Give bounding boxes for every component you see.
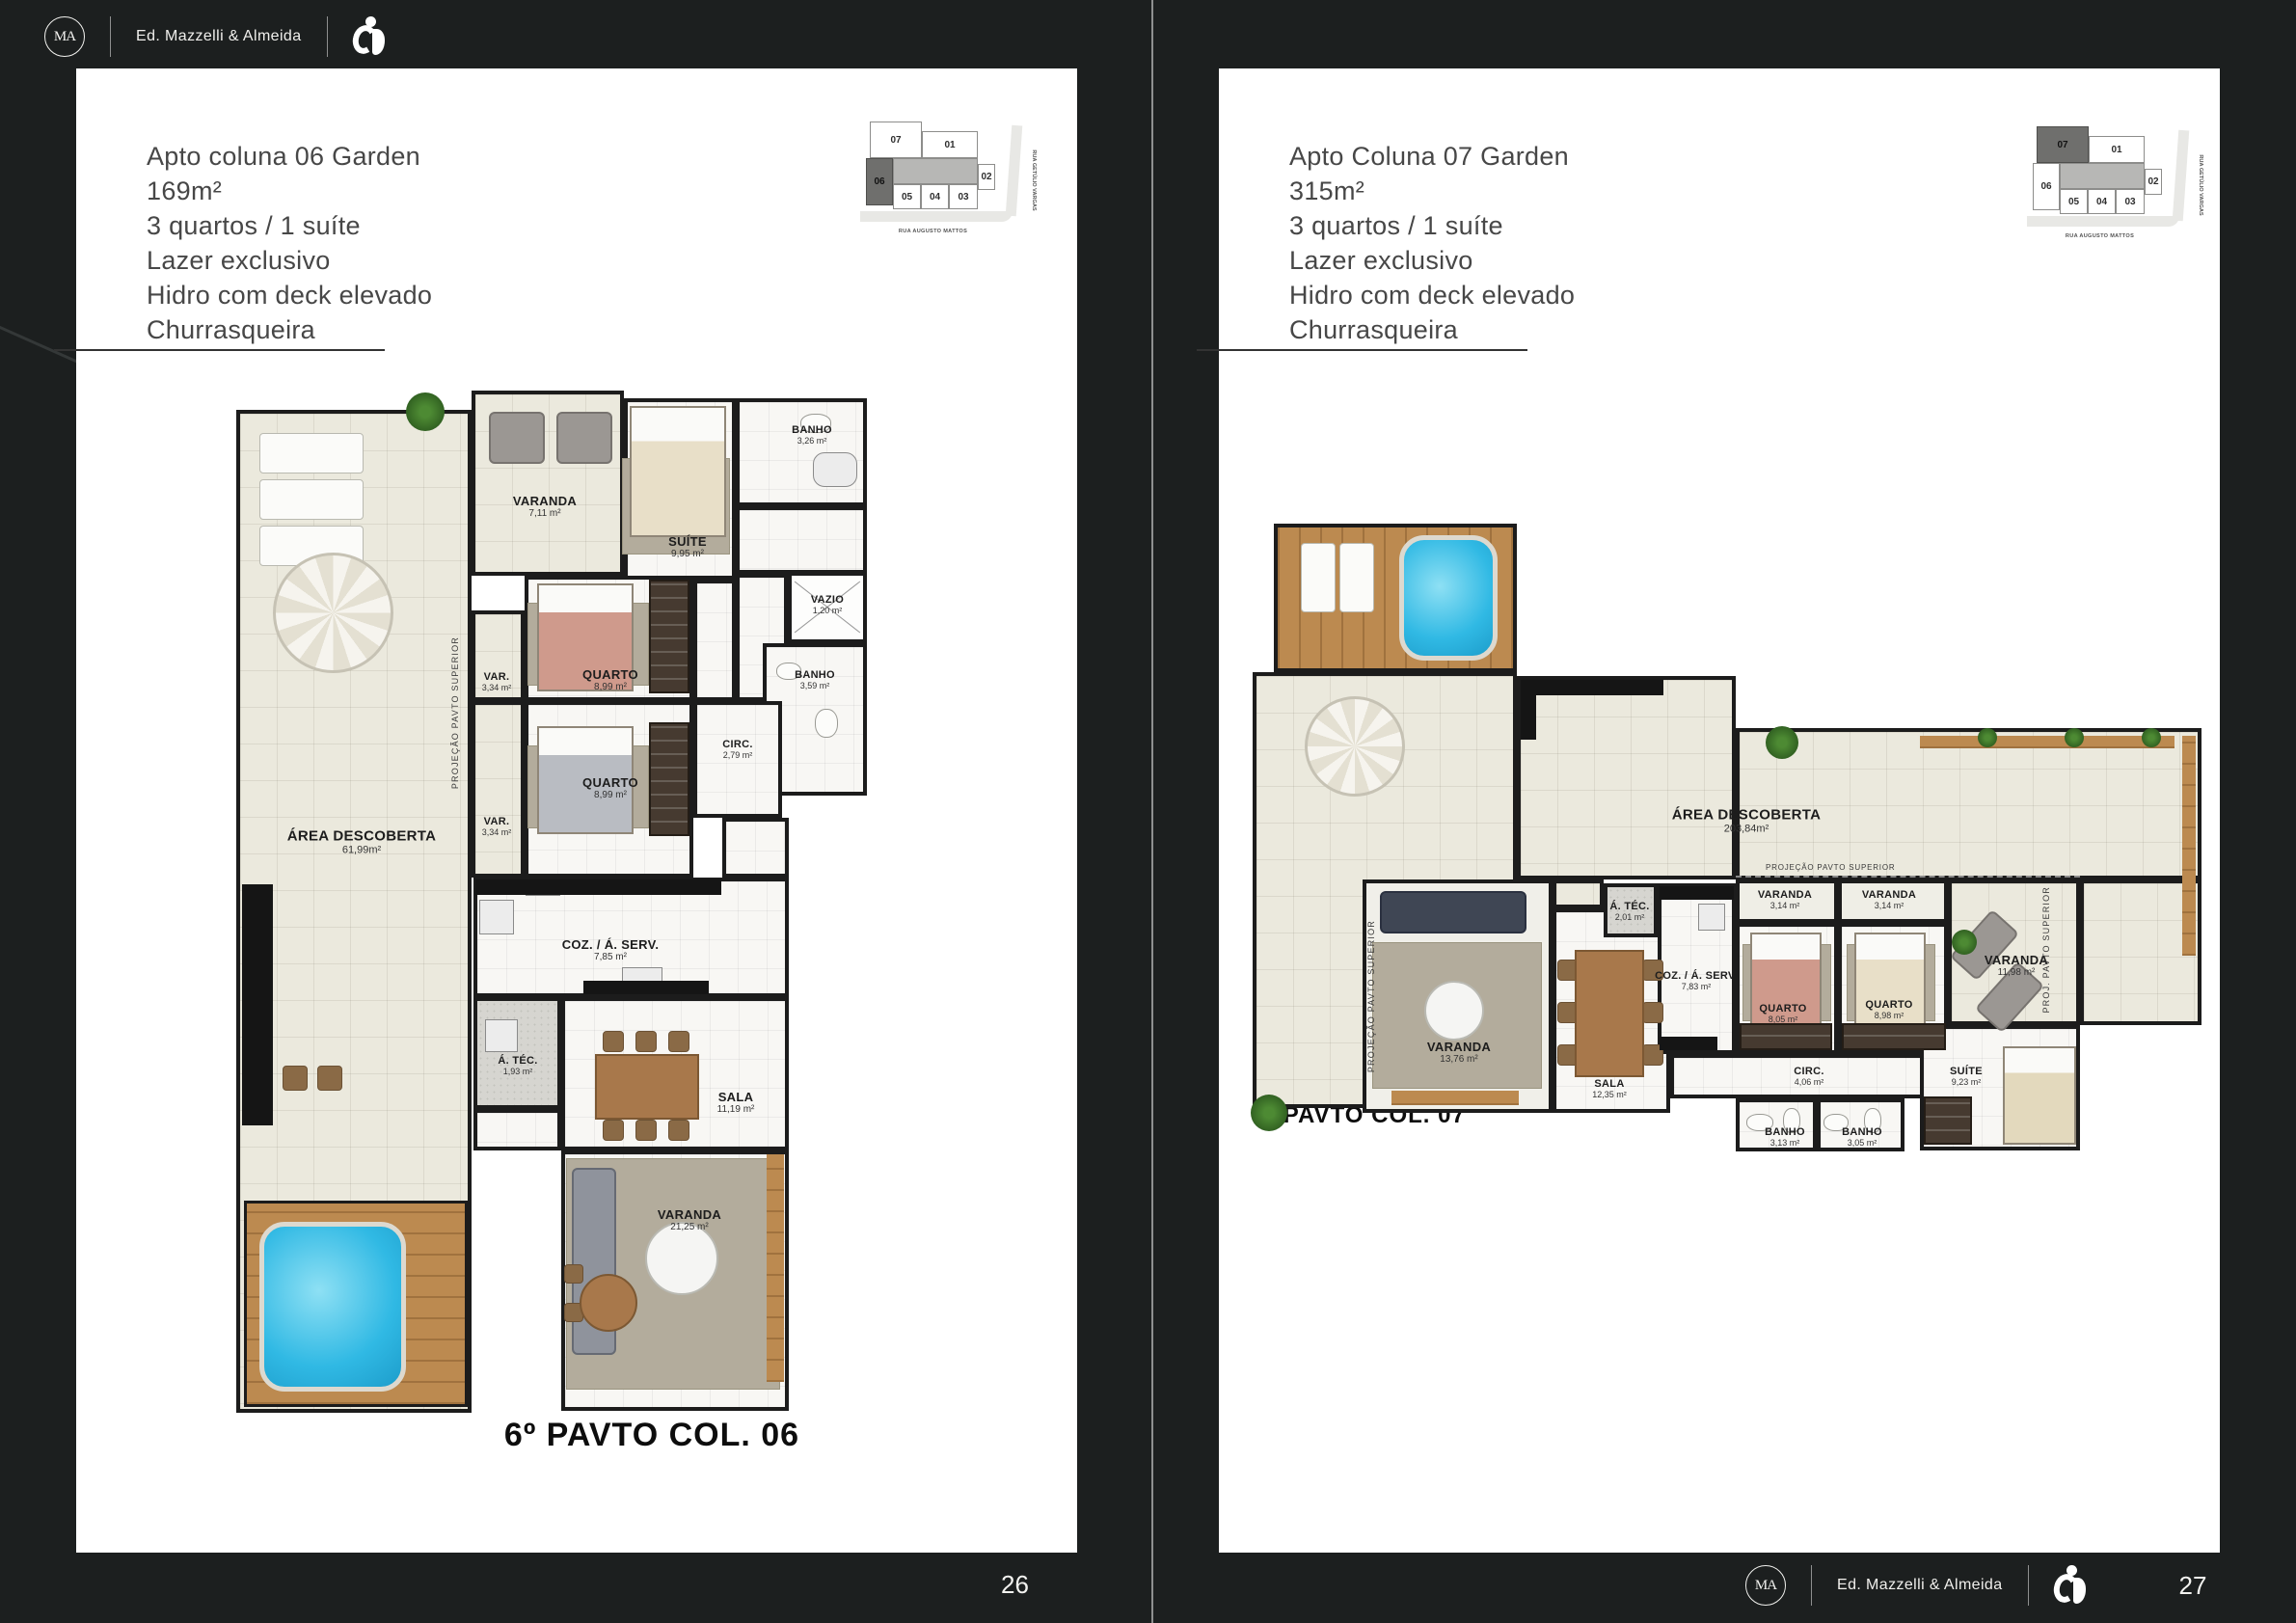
- wardrobe: [649, 722, 689, 836]
- kitchen-counter: [475, 879, 721, 895]
- hall: [1553, 879, 1604, 908]
- room-label-sala: SALA11,19 m²: [717, 1090, 755, 1115]
- plan-caption: 6º PAVTO COL. 06: [454, 1417, 850, 1454]
- room-label-area-descoberta: ÁREA DESCOBERTA61,99m²: [287, 828, 437, 856]
- room-label-sala: SALA12,35 m²: [1592, 1078, 1627, 1099]
- projection-label: PROJEÇÃO PAVTO SUPERIOR: [1366, 920, 1376, 1072]
- apt-feature: Hidro com deck elevado: [147, 279, 432, 313]
- street-label-bottom: RUA AUGUSTO MATTOS: [886, 228, 979, 233]
- keyplan-street-band: [2027, 216, 2179, 227]
- keyplan-unit-07: 07: [870, 122, 922, 158]
- room-label-banho-suite: BANHO3,26 m²: [792, 424, 832, 446]
- keyplan-unit-06-highlighted: 06: [866, 158, 893, 205]
- projection-dashed-line: [1736, 876, 2080, 878]
- chair: [1642, 1002, 1663, 1023]
- keyplan-core: [2060, 163, 2145, 189]
- bench: [1391, 1091, 1519, 1105]
- keyplan-unit-05: 05: [893, 184, 921, 209]
- room-label-varanda-1: VARANDA3,14 m²: [1758, 889, 1812, 910]
- wardrobe: [1740, 1023, 1832, 1050]
- room-var-2: [472, 701, 525, 878]
- header-bar: MA Ed. Mazzelli & Almeida: [44, 0, 386, 73]
- apt-feature: Churrasqueira: [1289, 313, 1575, 348]
- hall: [693, 580, 736, 701]
- lounger: [1339, 543, 1374, 612]
- keyplan-street-band: [2173, 130, 2190, 222]
- hall: [473, 1109, 561, 1150]
- plant: [1978, 728, 1997, 747]
- street-label-right: RUA GETÚLIO VARGAS: [1032, 149, 1038, 210]
- room-area-descoberta: [1736, 728, 2201, 879]
- apt-area: 315m²: [1289, 175, 1575, 209]
- room-area-descoberta: [1517, 676, 1736, 879]
- floorplan-col06: VARANDA7,11 m² SUÍTE9,95 m² BANHO3,26 m²…: [236, 391, 873, 1413]
- keyplan-unit-01: 01: [922, 131, 978, 158]
- appliance: [485, 1019, 518, 1052]
- apartment-description: Apto coluna 06 Garden 169m² 3 quartos / …: [147, 140, 432, 347]
- lounger: [259, 433, 364, 473]
- keyplan-unit-02: 02: [978, 164, 995, 190]
- room-label-varanda-main: VARANDA13,76 m²: [1427, 1040, 1491, 1065]
- kitchen-counter: [1521, 680, 1663, 695]
- apt-feature: Churrasqueira: [147, 313, 432, 348]
- room-label-banho-2: BANHO3,05 m²: [1842, 1126, 1882, 1148]
- apt-area: 169m²: [147, 175, 432, 209]
- street-label-right: RUA GETÚLIO VARGAS: [2199, 154, 2204, 215]
- kitchen-counter: [1521, 695, 1536, 740]
- page-number-right: 27: [2179, 1571, 2207, 1601]
- heading-divider: [54, 349, 385, 351]
- kitchen-counter: [1660, 1037, 1717, 1050]
- room-label-vazio: VAZIO1,20 m²: [811, 594, 844, 615]
- keyplan-unit-05: 05: [2060, 189, 2088, 214]
- room-label-banho-1: BANHO3,13 m²: [1765, 1126, 1805, 1148]
- room-label-coz: COZ. / Á. SERV.7,83 m²: [1655, 970, 1738, 991]
- parasol-table: [273, 553, 393, 673]
- bed-suite: [2003, 1046, 2076, 1145]
- coffee-table: [1424, 981, 1484, 1041]
- plant: [1766, 726, 1798, 759]
- projection-label: PROJEÇÃO PAVTO SUPERIOR: [450, 636, 460, 789]
- apt-feature: Hidro com deck elevado: [1289, 279, 1575, 313]
- wardrobe: [649, 580, 689, 693]
- stool: [283, 1066, 308, 1091]
- apt-feature: Lazer exclusivo: [147, 244, 432, 279]
- apt-title: Apto Coluna 07 Garden: [1289, 140, 1575, 175]
- room-label-banho-2: BANHO3,59 m²: [795, 669, 835, 690]
- room-label-varanda-bottom: VARANDA21,25 m²: [658, 1207, 721, 1232]
- room-a-tec: [473, 997, 561, 1109]
- parasol-table: [1305, 696, 1405, 797]
- projection-label-top: PROJEÇÃO PAVTO SUPERIOR: [1766, 863, 1895, 872]
- dining-table: [1575, 950, 1644, 1077]
- brand-name: Ed. Mazzelli & Almeida: [1837, 1577, 2003, 1594]
- room-label-circ: CIRC.2,79 m²: [722, 739, 752, 760]
- hall: [722, 818, 789, 878]
- lounger: [1301, 543, 1336, 612]
- room-label-circ: CIRC.4,06 m²: [1794, 1066, 1823, 1087]
- stool: [317, 1066, 342, 1091]
- keyplan: 07 01 02 06 05 04 03 RUA AUGUSTO MATTOS …: [858, 116, 1027, 231]
- fridge: [1698, 904, 1725, 931]
- apt-rooms: 3 quartos / 1 suíte: [147, 209, 432, 244]
- dining-table: [595, 1054, 699, 1120]
- footer-bar: MA Ed. Mazzelli & Almeida 27: [1745, 1560, 2206, 1610]
- keyplan-unit-04: 04: [921, 184, 949, 209]
- footer-divider: [2028, 1565, 2029, 1606]
- room-label-suite: SUÍTE9,95 m²: [668, 534, 707, 559]
- churrasqueira-counter: [242, 884, 273, 1125]
- page-left: Apto coluna 06 Garden 169m² 3 quartos / …: [76, 68, 1077, 1553]
- sofa: [1380, 891, 1526, 933]
- room-label-varanda-top: VARANDA7,11 m²: [513, 494, 577, 519]
- brochure-spread: MA Ed. Mazzelli & Almeida MA Ed. Mazzell…: [0, 0, 2296, 1623]
- keyplan-street-band: [860, 211, 1013, 222]
- room-label-quarto-2: QUARTO8,99 m²: [582, 775, 638, 800]
- plant: [1251, 1095, 1287, 1131]
- keyplan-unit-02: 02: [2145, 169, 2162, 195]
- heading-divider: [1197, 349, 1527, 351]
- armchair: [489, 412, 545, 464]
- keyplan-street-band: [1006, 125, 1023, 217]
- apt-feature: Lazer exclusivo: [1289, 244, 1575, 279]
- keyplan: 07 01 02 06 05 04 03 RUA AUGUSTO MATTOS …: [2025, 121, 2194, 236]
- builder-logo-icon: [2054, 1565, 2087, 1606]
- chair: [668, 1031, 689, 1052]
- keyplan-unit-03: 03: [949, 184, 978, 209]
- plant: [2142, 728, 2161, 747]
- kitchen-counter: [1660, 886, 1734, 900]
- kitchen-counter: [583, 981, 709, 994]
- bench: [767, 1154, 784, 1382]
- keyplan-unit-06: 06: [2033, 163, 2060, 210]
- chair: [668, 1120, 689, 1141]
- wardrobe: [1842, 1023, 1946, 1050]
- room-label-quarto-1: QUARTO8,99 m²: [582, 667, 638, 692]
- apt-rooms: 3 quartos / 1 suíte: [1289, 209, 1575, 244]
- floorplan-col07: ÁREA DESCOBERTA203,84m² VARANDA13,76 m² …: [1245, 520, 2215, 1157]
- lounger: [259, 479, 364, 520]
- plant: [1952, 930, 1977, 955]
- hidro-pool: [1399, 535, 1498, 661]
- hidro-pool: [259, 1222, 406, 1392]
- room-label-coz: COZ. / Á. SERV.7,85 m²: [562, 937, 660, 962]
- hall: [736, 506, 867, 574]
- chair: [635, 1031, 657, 1052]
- room-label-varanda-2: VARANDA3,14 m²: [1862, 889, 1916, 910]
- page-number-left: 26: [1001, 1570, 1029, 1600]
- room-label-quarto-1: QUARTO8,05 m²: [1759, 1003, 1806, 1024]
- apartment-description: Apto Coluna 07 Garden 315m² 3 quartos / …: [1289, 140, 1575, 347]
- keyplan-unit-07-highlighted: 07: [2037, 126, 2089, 163]
- bathtub: [813, 452, 857, 487]
- armchair: [556, 412, 612, 464]
- builder-logo-icon: [353, 16, 386, 57]
- spread-spine-line: [1151, 0, 1153, 1623]
- chair: [603, 1120, 624, 1141]
- plant: [406, 392, 445, 431]
- planter-bench: [1920, 736, 2174, 748]
- page-right: Apto Coluna 07 Garden 315m² 3 quartos / …: [1219, 68, 2220, 1553]
- toilet: [815, 709, 838, 738]
- chair: [564, 1264, 583, 1284]
- header-divider: [110, 16, 111, 57]
- keyplan-unit-04: 04: [2088, 189, 2116, 214]
- pergola-edge: [2182, 736, 2196, 956]
- keyplan-unit-01: 01: [2089, 136, 2145, 163]
- brand-name: Ed. Mazzelli & Almeida: [136, 28, 302, 45]
- keyplan-core: [893, 158, 978, 184]
- bed-suite: [630, 406, 726, 537]
- wardrobe: [1924, 1096, 1972, 1145]
- chair: [635, 1120, 657, 1141]
- chair: [603, 1031, 624, 1052]
- apt-title: Apto coluna 06 Garden: [147, 140, 432, 175]
- footer-divider: [1811, 1565, 1812, 1606]
- ma-logo-icon: MA: [1745, 1565, 1786, 1606]
- projection-label-short: PROJ. PAVTO SUPERIOR: [2041, 886, 2051, 1014]
- ma-logo-icon: MA: [44, 16, 85, 57]
- room-label-a-tec: Á. TÉC.1,93 m²: [498, 1055, 537, 1076]
- coffee-table: [645, 1222, 718, 1295]
- street-label-bottom: RUA AUGUSTO MATTOS: [2053, 232, 2146, 238]
- round-table: [580, 1274, 637, 1332]
- plant: [2065, 728, 2084, 747]
- header-divider: [327, 16, 328, 57]
- washer: [479, 900, 514, 934]
- room-label-suite: SUÍTE9,23 m²: [1950, 1066, 1983, 1087]
- room-label-area-descoberta: ÁREA DESCOBERTA203,84m²: [1672, 807, 1822, 835]
- room-label-a-tec: Á. TÉC.2,01 m²: [1609, 901, 1649, 922]
- keyplan-unit-03: 03: [2116, 189, 2145, 214]
- room-label-var-1: VAR.3,34 m²: [482, 671, 512, 692]
- room-label-varanda-open: VARANDA11,98 m²: [1985, 953, 2048, 978]
- room-label-var-2: VAR.3,34 m²: [482, 816, 512, 837]
- room-label-quarto-2: QUARTO8,98 m²: [1865, 999, 1912, 1020]
